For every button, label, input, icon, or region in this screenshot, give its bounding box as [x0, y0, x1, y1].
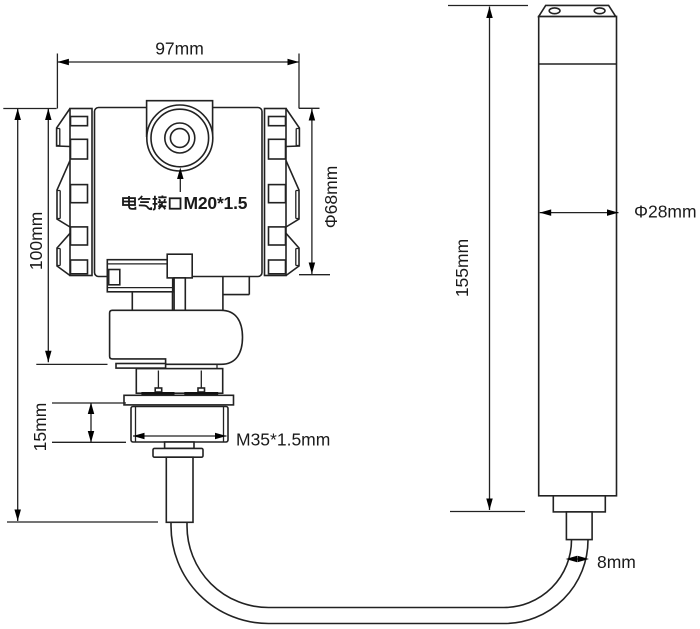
- svg-text:M20*1.5: M20*1.5: [184, 193, 248, 213]
- svg-text:8mm: 8mm: [597, 552, 636, 572]
- svg-text:Φ68mm: Φ68mm: [321, 166, 341, 229]
- svg-text:15mm: 15mm: [30, 403, 50, 452]
- svg-text:155mm: 155mm: [452, 239, 472, 297]
- svg-text:100mm: 100mm: [26, 212, 46, 270]
- svg-text:97mm: 97mm: [155, 39, 204, 59]
- svg-text:M35*1.5mm: M35*1.5mm: [236, 430, 330, 450]
- svg-text:Φ28mm: Φ28mm: [634, 202, 697, 222]
